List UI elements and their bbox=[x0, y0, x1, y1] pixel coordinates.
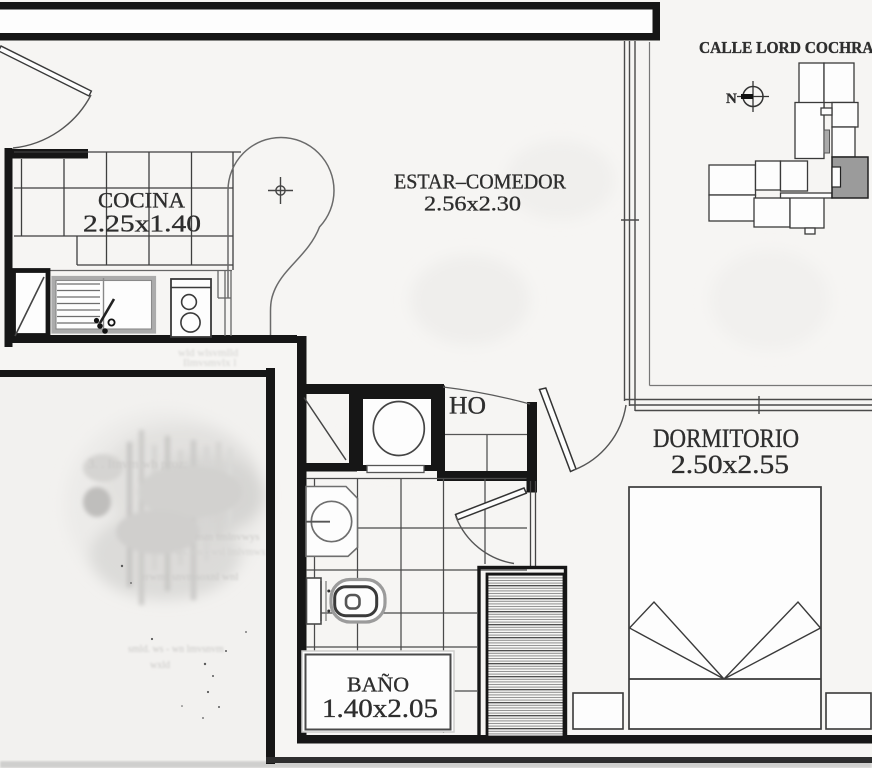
svg-text:N: N bbox=[726, 91, 737, 107]
svg-text:DORMITORIO: DORMITORIO bbox=[653, 424, 799, 453]
svg-text:Ilmvsmvlx l: Ilmvsmvlx l bbox=[183, 357, 236, 369]
svg-text:nsm tmlnvwys: nsm tmlnvwys bbox=[195, 531, 259, 543]
svg-text:ESTAR–COMEDOR: ESTAR–COMEDOR bbox=[394, 170, 566, 194]
svg-text:2.50x2.55: 2.50x2.55 bbox=[671, 450, 789, 479]
svg-text:BAÑO: BAÑO bbox=[347, 673, 409, 697]
svg-text:1.40x2.05: 1.40x2.05 bbox=[322, 694, 438, 723]
svg-text:COCINA: COCINA bbox=[98, 188, 185, 213]
svg-text:HO: HO bbox=[449, 393, 486, 420]
svg-text:2.56x2.30: 2.56x2.30 bbox=[424, 192, 521, 216]
svg-text:ws. ms - wsl lmlvmwx: ws. ms - wsl lmlvmwx bbox=[175, 547, 266, 558]
svg-text:smld. ws - wn lmvsnvm: smld. ws - wn lmvsnvm bbox=[128, 644, 224, 655]
svg-text:wxld: wxld bbox=[150, 660, 170, 671]
svg-text:CALLE LORD COCHRANE: CALLE LORD COCHRANE bbox=[699, 38, 872, 57]
svg-text:rrwmt snvmsoxnl wnl: rrwmt snvmsoxnl wnl bbox=[142, 571, 239, 583]
svg-text:3. . Itnvm wh proz:: 3. . Itnvm wh proz: bbox=[88, 456, 188, 471]
svg-text:2.25x1.40: 2.25x1.40 bbox=[83, 212, 201, 238]
